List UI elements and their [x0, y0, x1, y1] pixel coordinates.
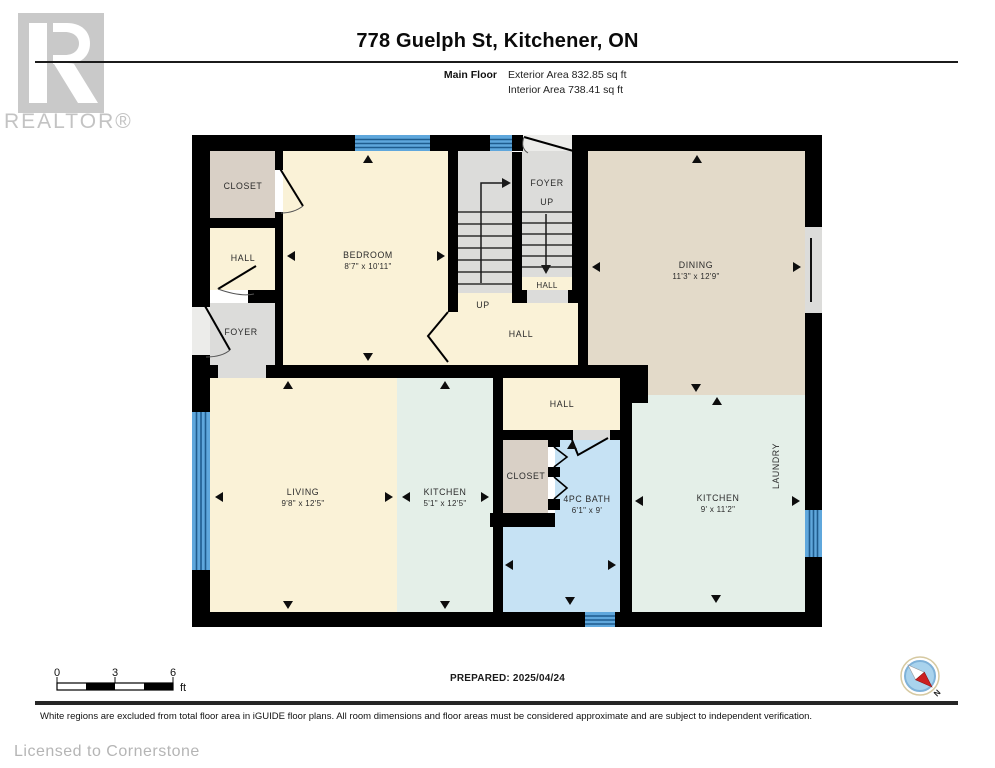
room-label-dining: DINING [679, 260, 713, 270]
threshold-stair [527, 290, 568, 303]
exterior-area: Exterior Area 832.85 sq ft [508, 69, 626, 81]
prepared-date: PREPARED: 2025/04/24 [450, 673, 565, 684]
room-dining [588, 151, 805, 365]
license-text: Licensed to Cornerstone [14, 743, 200, 761]
room-label-hall-top: HALL [231, 253, 255, 263]
room-kitchen-right [632, 395, 805, 612]
window-bath-bottom [585, 612, 615, 627]
label-up-right: UP [540, 197, 553, 207]
window-kitchen-right [805, 510, 822, 557]
room-label-laundry: LAUNDRY [771, 443, 781, 489]
room-label-foyer-left: FOYER [224, 327, 257, 337]
scale-unit: ft [180, 682, 186, 694]
window-living-left [192, 412, 210, 570]
room-label-living: LIVING [287, 487, 319, 497]
room-dims-living: 9'8" x 12'5" [281, 499, 324, 508]
room-dims-kitchen-right: 9' x 11'2" [701, 505, 736, 514]
room-dims-kitchen-small: 5'1" x 12'5" [423, 499, 466, 508]
realtor-logo [18, 13, 104, 113]
room-dims-dining: 11'3" x 12'9" [672, 272, 719, 281]
disclaimer-text: White regions are excluded from total fl… [40, 711, 970, 722]
room-label-bedroom: BEDROOM [343, 250, 393, 260]
window-bedroom-top [355, 135, 430, 151]
room-dims-bath: 6'1" x 9' [572, 506, 603, 515]
room-label-hall-bottom: HALL [550, 399, 574, 409]
room-label-bath: 4PC BATH [563, 494, 610, 504]
page-title: 778 Guelph St, Kitchener, ON [0, 30, 995, 53]
room-dining-ext [645, 365, 805, 395]
label-up-left: UP [476, 300, 489, 310]
threshold-living [216, 365, 266, 378]
realtor-logo-text: REALTOR® [4, 110, 154, 134]
compass-icon: N [896, 653, 946, 703]
interior-area: Interior Area 738.41 sq ft [508, 84, 623, 96]
compass-north-label: N [932, 688, 943, 699]
room-dims-bedroom: 8'7" x 10'11" [344, 262, 391, 271]
title-divider [35, 61, 958, 63]
room-label-closet-top: CLOSET [224, 181, 263, 191]
patio-door [805, 227, 822, 313]
window-stair-top [490, 135, 512, 151]
threshold-bath [573, 430, 610, 440]
scale-bar: 0 3 6 ft [50, 666, 200, 696]
room-label-hall-center: HALL [509, 329, 533, 339]
bedroom-door-gap [448, 312, 458, 365]
floor-label: Main Floor [377, 69, 497, 81]
room-label-foyer-top: FOYER [530, 178, 563, 188]
room-label-kitchen-right: KITCHEN [697, 493, 740, 503]
room-label-hall-strip: HALL [536, 281, 557, 290]
floor-plan: CLOSET HALL FOYER BEDROOM 8'7" x 10'11" … [185, 128, 830, 645]
room-label-closet-bottom: CLOSET [507, 471, 546, 481]
room-label-kitchen-small: KITCHEN [424, 487, 467, 497]
footer-divider [35, 701, 958, 705]
